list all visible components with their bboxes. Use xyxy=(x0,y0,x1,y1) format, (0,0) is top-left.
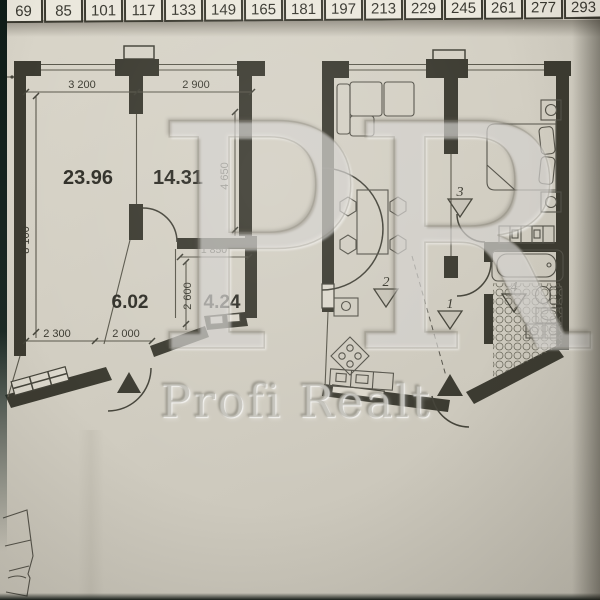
wall-diagonal xyxy=(150,326,209,357)
tape-number: 229 xyxy=(404,0,443,20)
balcony-box xyxy=(124,46,154,59)
zone-number: 3 xyxy=(456,185,464,200)
partial-sketch xyxy=(3,510,33,596)
zone-marker-kitchen-living: 2 xyxy=(374,275,398,307)
tape-number: 149 xyxy=(204,0,243,22)
dim-left-height: 8 100 xyxy=(20,226,32,254)
wall xyxy=(426,59,468,78)
wall xyxy=(484,294,493,344)
zone-number: 1 xyxy=(447,297,454,312)
wall-left xyxy=(322,76,334,312)
tape-number: 197 xyxy=(324,0,363,21)
dim-bathroom-height: 2 600 xyxy=(182,282,194,310)
room-area-hall: 6.02 xyxy=(112,292,149,313)
wall xyxy=(129,204,143,240)
window xyxy=(322,284,334,308)
tape-number: 261 xyxy=(484,0,523,20)
photo-edge-right xyxy=(572,16,600,600)
room-area-bathroom: 4.24 xyxy=(204,292,241,313)
window xyxy=(210,316,224,325)
entrance-arrow xyxy=(437,374,463,396)
room-area-bedroom: 14.31 xyxy=(153,167,203,189)
zone-triangle-icon xyxy=(438,311,462,329)
tape-number: 117 xyxy=(124,0,163,22)
tape-shadow xyxy=(0,20,600,37)
door-arc xyxy=(143,208,177,242)
wall xyxy=(115,59,159,76)
zone-triangle-icon xyxy=(448,199,472,217)
zone-triangle-icon xyxy=(374,289,398,307)
wall xyxy=(544,61,571,76)
sofa xyxy=(337,82,414,136)
wall xyxy=(322,61,349,78)
floor-plan-right: 1 2 3 4 xyxy=(322,50,571,427)
tape-number: 277 xyxy=(524,0,563,19)
tape-number: 69 xyxy=(4,0,43,23)
wall xyxy=(444,256,458,278)
zone-number: 4 xyxy=(511,280,518,295)
door-arc xyxy=(457,262,491,296)
tape-number: 85 xyxy=(44,0,83,23)
photo-edge-bottom xyxy=(0,593,600,600)
dim-bottom-left: 2 300 xyxy=(43,328,71,340)
tape-number: 101 xyxy=(84,0,123,23)
dining-table xyxy=(340,190,406,254)
dim-bedroom-height: 4 650 xyxy=(219,162,231,190)
dim-bathroom-width: 1 850 xyxy=(201,244,227,256)
wall-left xyxy=(14,74,26,356)
bathtub xyxy=(492,250,563,281)
dim-bottom-mid: 2 000 xyxy=(112,328,140,340)
floor-plan-drawing: 3 200 2 900 8 100 4 650 1 850 2 600 2 30… xyxy=(0,0,600,600)
dim-top-right: 2 900 xyxy=(182,79,210,91)
wall xyxy=(245,236,257,318)
tape-number: 133 xyxy=(164,0,203,22)
door-arc xyxy=(457,214,485,242)
dim-top-left: 3 200 xyxy=(68,79,96,91)
zone-number: 2 xyxy=(383,275,390,290)
floor-plan-left: 3 200 2 900 8 100 4 650 1 850 2 600 2 30… xyxy=(0,46,265,411)
photo-edge-left xyxy=(0,0,7,552)
wall-right xyxy=(239,74,252,236)
wall xyxy=(444,76,458,154)
window xyxy=(227,314,241,323)
tape-number: 213 xyxy=(364,0,403,21)
kitchen-counter xyxy=(329,369,393,390)
wardrobe xyxy=(499,226,554,243)
room-area-living: 23.96 xyxy=(63,167,113,189)
tape-number: 181 xyxy=(284,0,323,21)
zone-marker-bedroom: 3 xyxy=(448,185,472,217)
entrance-arrow xyxy=(117,372,141,393)
bed xyxy=(487,121,556,193)
zone-marker-hall: 1 xyxy=(438,297,462,329)
tape-number: 245 xyxy=(444,0,483,20)
tape-number: 165 xyxy=(244,0,283,21)
wall xyxy=(14,61,41,76)
kitchen-sink-unit xyxy=(334,298,358,316)
wall xyxy=(237,61,265,76)
